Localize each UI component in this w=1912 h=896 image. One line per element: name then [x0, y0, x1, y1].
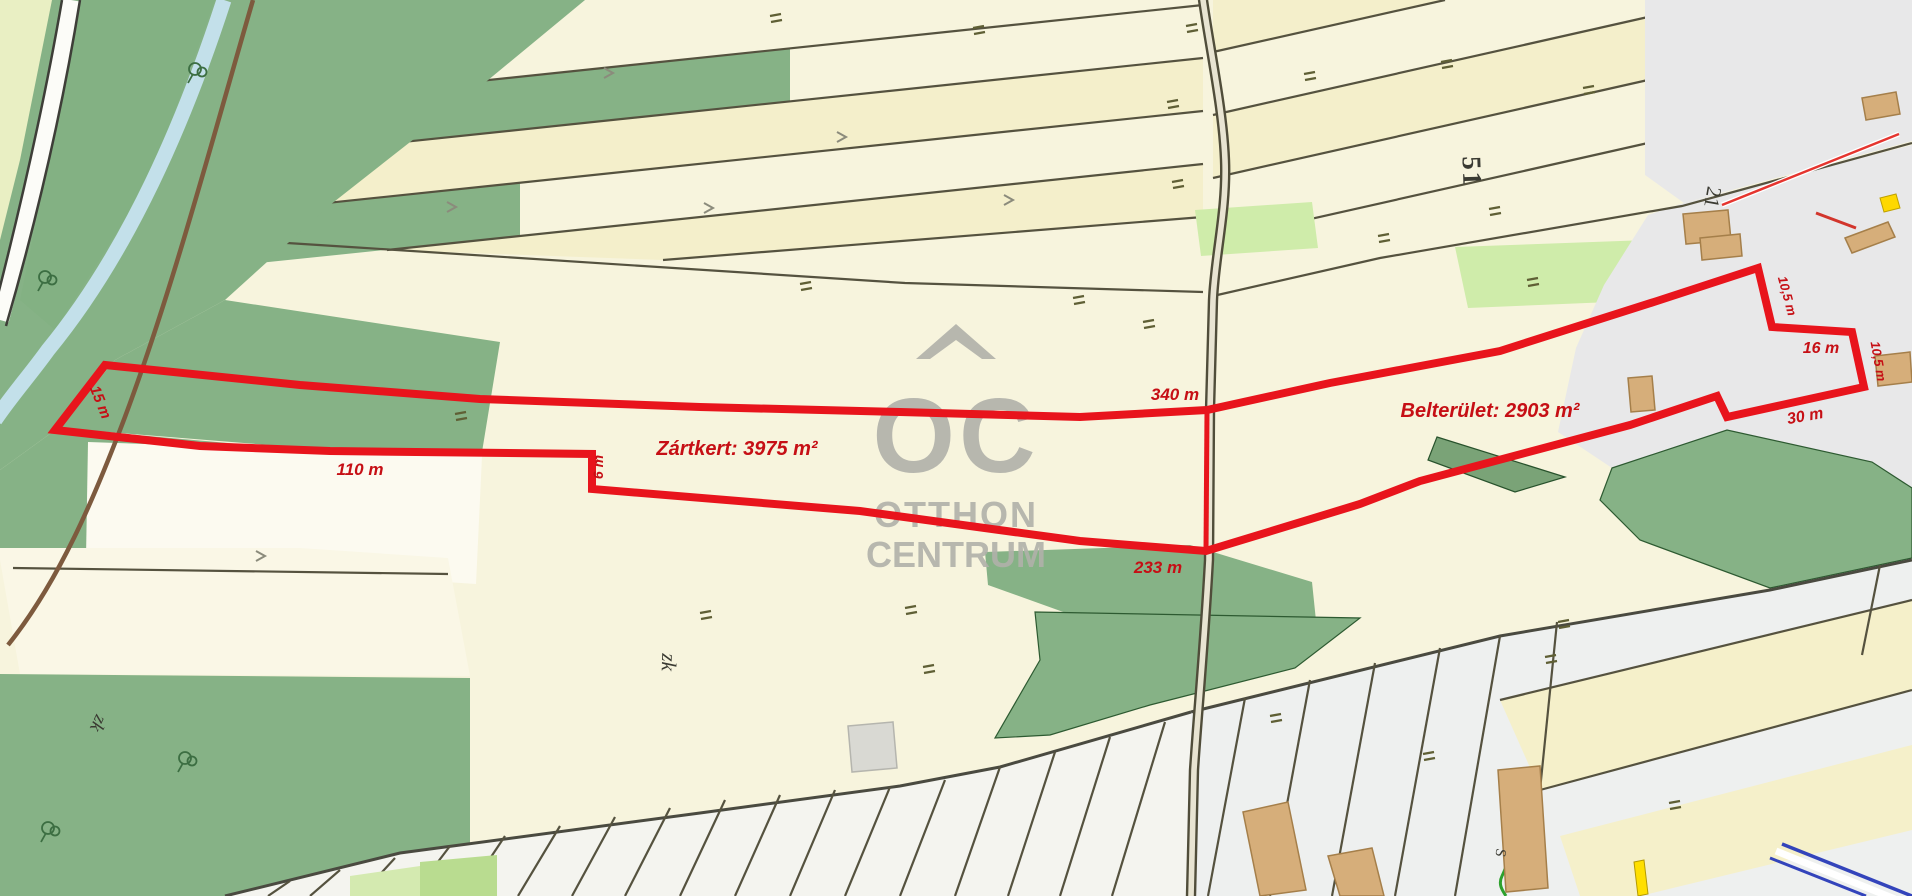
- watermark-brand-line2: CENTRUM: [866, 534, 1046, 575]
- cream-wedge: [0, 548, 470, 676]
- watermark-monogram: OC: [873, 377, 1040, 495]
- measurement-right-top: 16 m: [1803, 340, 1839, 357]
- measurement-bottom: 233 m: [1133, 558, 1182, 577]
- map-canvas: 51 21 zk zk S OC OTTHON CENTRUM 15 m 110…: [0, 0, 1912, 896]
- parcel-number-label: 21: [1699, 185, 1726, 210]
- zone-urban-area-label: Belterület: 2903 m²: [1401, 400, 1581, 422]
- measurement-bottom-left: 110 m: [337, 460, 384, 479]
- measurement-top: 340 m: [1151, 385, 1199, 404]
- zone-garden-area-label: Zártkert: 3975 m²: [655, 438, 819, 460]
- zone-code-center-label: zk: [657, 652, 682, 672]
- block-number-label: 51: [1456, 156, 1487, 188]
- measurement-step: 6 m: [590, 455, 606, 479]
- cadastral-map: 51 21 zk zk S OC OTTHON CENTRUM 15 m 110…: [0, 0, 1912, 896]
- zone-divider-line: [1206, 410, 1207, 551]
